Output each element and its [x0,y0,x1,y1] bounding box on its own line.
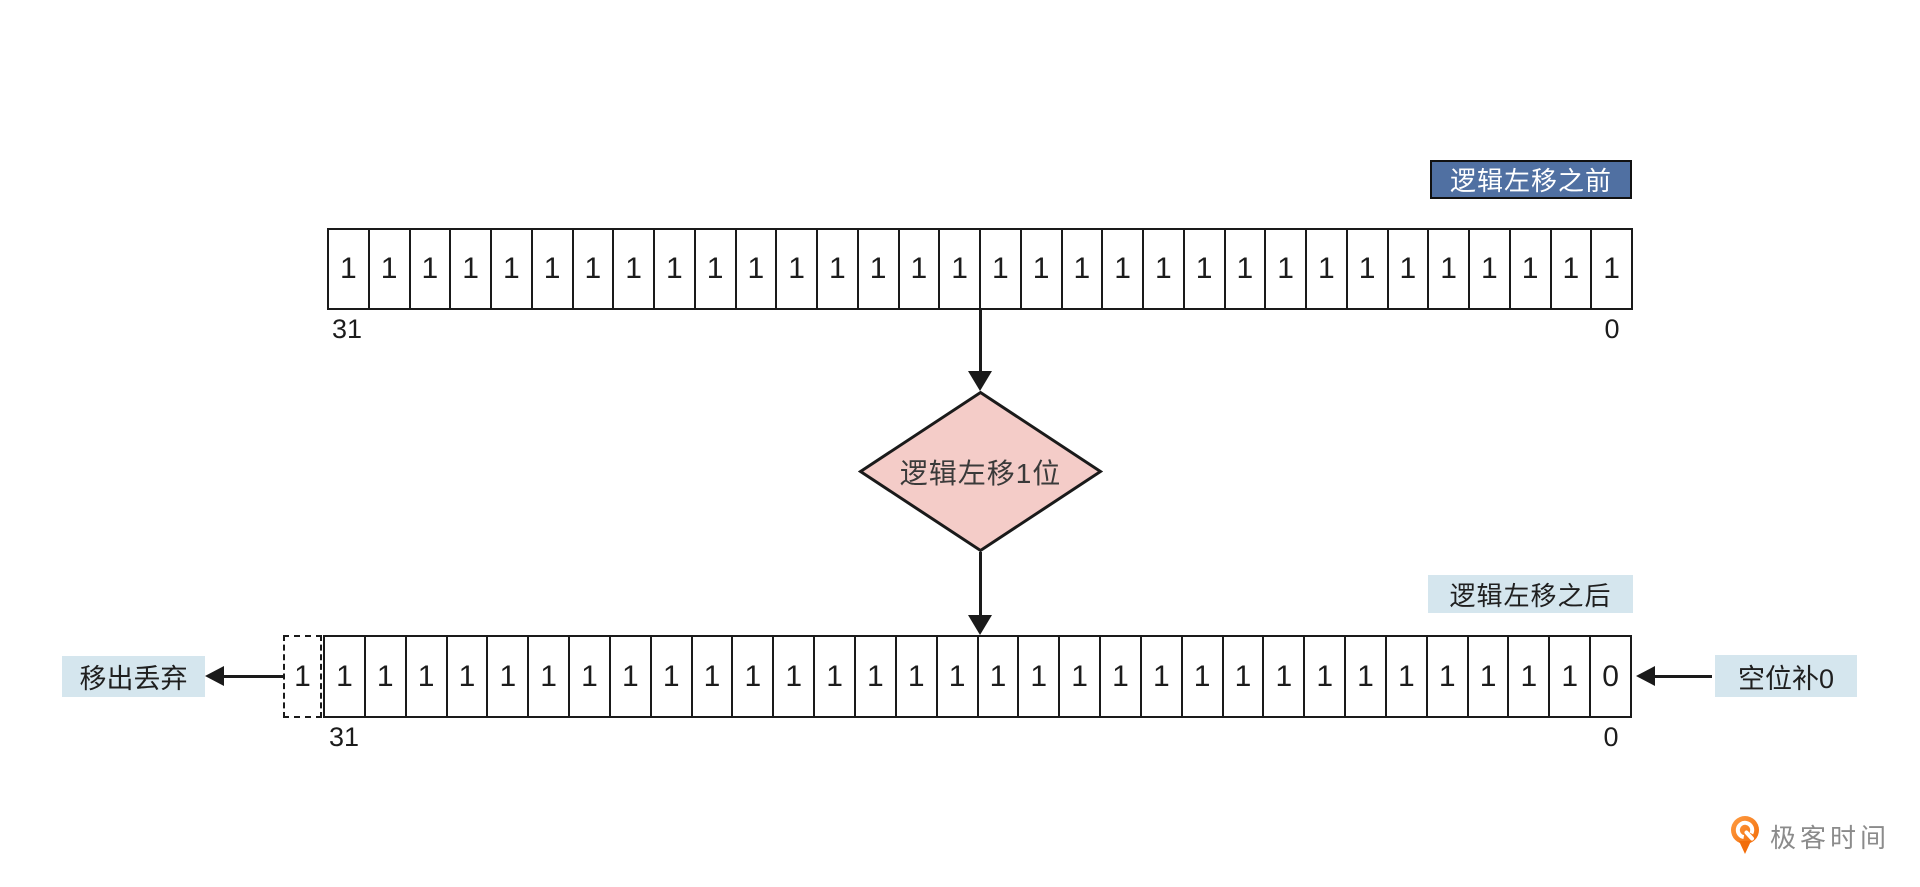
register-cell: 1 [818,230,859,308]
register-cell: 1 [1060,637,1101,716]
register-cell: 1 [1552,230,1593,308]
register-cell: 1 [1509,637,1550,716]
geektime-logo: 极客时间 [1729,814,1890,858]
register-cell: 1 [1307,230,1348,308]
arrowhead-to-diamond-icon [968,371,992,391]
operation-label: 逻辑左移1位 [858,390,1103,553]
register-cell: 1 [856,637,897,716]
register-cell: 1 [1185,230,1226,308]
register-cell: 1 [1470,230,1511,308]
register-cell: 1 [940,230,981,308]
title-after-shift: 逻辑左移之后 [1428,575,1633,613]
annotation-fill-zero-label: 空位补0 [1715,655,1857,697]
register-cell: 1 [570,637,611,716]
register-cell: 1 [1550,637,1591,716]
register-cell: 1 [1224,637,1265,716]
register-cell: 1 [1022,230,1063,308]
register-cell: 1 [370,230,411,308]
arrow-line-to-register-after [979,552,982,616]
register-cell: 1 [325,637,366,716]
register-cell: 1 [451,230,492,308]
title-before-shift: 逻辑左移之前 [1430,160,1632,199]
register-cell: 1 [1266,230,1307,308]
register-before: 11111111111111111111111111111111 [327,228,1633,310]
arrow-line-discard [222,675,284,678]
register-cell: 1 [411,230,452,308]
register-after: 11111111111111111111111111111110 [323,635,1632,718]
register-cell: 1 [777,230,818,308]
register-cell: 1 [329,230,370,308]
register-cell: 1 [774,637,815,716]
register-cell: 1 [1142,637,1183,716]
register-cell: 1 [1183,637,1224,716]
register-cell: 1 [529,637,570,716]
register-cell: 1 [611,637,652,716]
arrowhead-to-register-after-icon [968,615,992,635]
register-cell: 1 [492,230,533,308]
register-cell: 1 [407,637,448,716]
register-cell: 1 [1101,637,1142,716]
register-cell: 1 [1144,230,1185,308]
register-cell: 1 [448,637,489,716]
arrow-line-to-diamond [979,310,982,373]
register-cell: 1 [1592,230,1631,308]
register-after-lsb-index: 0 [1589,722,1633,753]
register-cell: 1 [652,637,693,716]
register-cell: 1 [533,230,574,308]
register-cell: 1 [900,230,941,308]
arrow-line-fill-zero [1653,675,1712,678]
register-cell: 1 [1019,637,1060,716]
operation-diamond: 逻辑左移1位 [858,390,1103,553]
register-cell: 1 [1226,230,1267,308]
register-cell: 1 [693,637,734,716]
register-cell: 1 [488,637,529,716]
register-cell: 1 [574,230,615,308]
annotation-discard-label: 移出丢弃 [62,656,205,697]
register-cell: 1 [979,637,1020,716]
geektime-logo-text: 极客时间 [1770,818,1890,855]
register-cell: 1 [1264,637,1305,716]
register-cell: 1 [1063,230,1104,308]
register-cell: 1 [897,637,938,716]
register-cell: 1 [981,230,1022,308]
register-cell: 1 [696,230,737,308]
register-cell: 1 [1387,637,1428,716]
register-cell: 1 [1389,230,1430,308]
register-cell: 1 [1429,230,1470,308]
register-after-msb-index: 31 [322,722,366,753]
register-cell: 1 [1346,637,1387,716]
register-cell: 1 [815,637,856,716]
register-cell: 1 [614,230,655,308]
register-cell: 1 [859,230,900,308]
register-cell: 1 [938,637,979,716]
register-before-msb-index: 31 [325,314,369,345]
register-cell: 1 [1305,637,1346,716]
logical-left-shift-diagram: 逻辑左移之前 11111111111111111111111111111111 … [0,0,1920,887]
register-cell: 1 [1469,637,1510,716]
register-cell: 1 [1103,230,1144,308]
register-cell: 1 [733,637,774,716]
register-before-lsb-index: 0 [1590,314,1634,345]
register-cell: 0 [1591,637,1630,716]
geektime-pin-icon [1729,815,1761,857]
register-cell: 1 [737,230,778,308]
register-cell: 1 [366,637,407,716]
register-cell: 1 [1428,637,1469,716]
register-cell: 1 [655,230,696,308]
register-cell: 1 [1511,230,1552,308]
overflow-bit-cell: 1 [283,635,322,718]
register-cell: 1 [1348,230,1389,308]
